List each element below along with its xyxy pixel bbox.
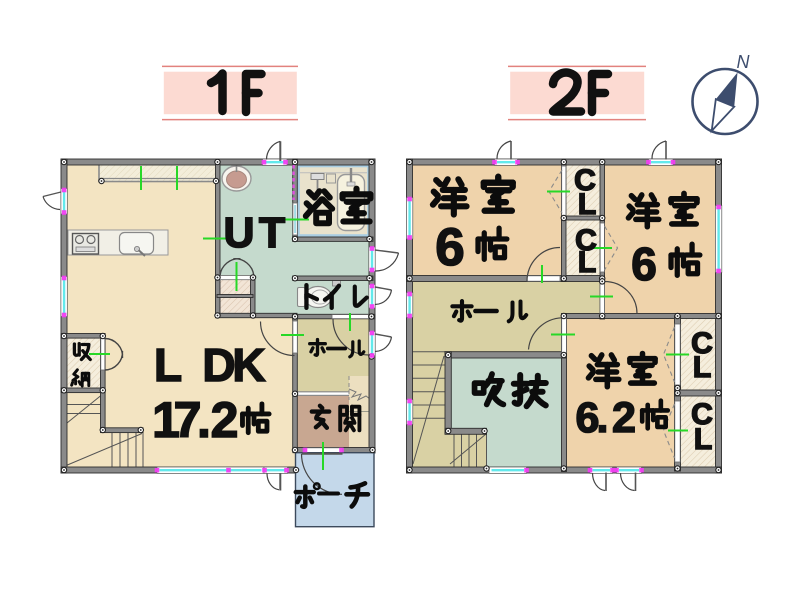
svg-text:6: 6 — [435, 218, 464, 277]
svg-text:L: L — [578, 246, 596, 279]
svg-text:.: . — [597, 394, 609, 442]
svg-text:2: 2 — [612, 394, 636, 442]
svg-text:.: . — [197, 392, 211, 448]
svg-text:2: 2 — [211, 392, 239, 448]
svg-text:N: N — [737, 52, 751, 72]
svg-text:T: T — [259, 209, 285, 257]
svg-text:U: U — [223, 209, 254, 257]
svg-text:6: 6 — [631, 238, 657, 290]
svg-text:D: D — [202, 339, 235, 391]
svg-text:L: L — [578, 188, 596, 221]
svg-text:L: L — [693, 351, 711, 384]
svg-text:L: L — [154, 339, 182, 391]
svg-text:L: L — [694, 423, 712, 456]
svg-text:K: K — [232, 339, 265, 391]
